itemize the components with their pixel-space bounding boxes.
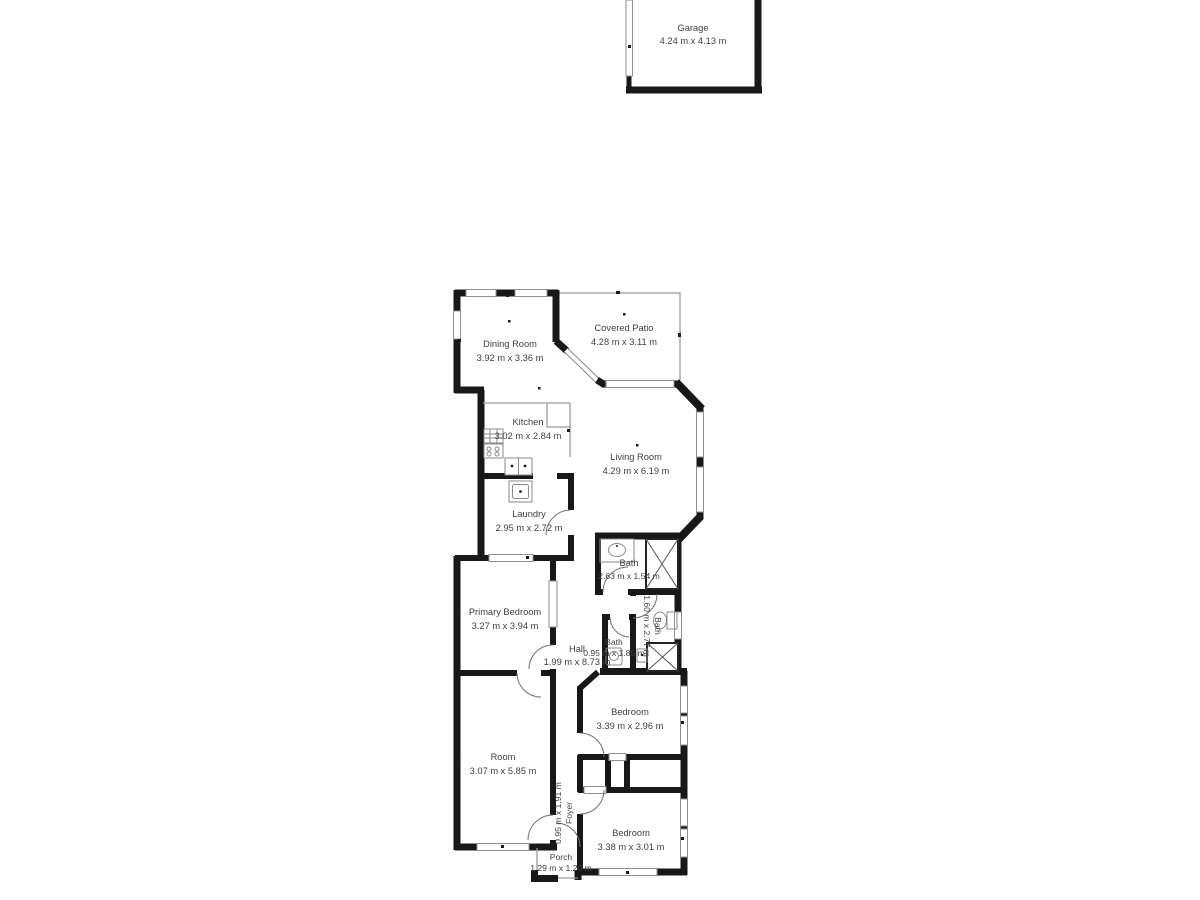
floorplan-page: Garage 4.24 m x 4.13 m Dining Room 3.92 … bbox=[0, 0, 1200, 900]
room-dims-living: 4.29 m x 6.19 m bbox=[603, 466, 670, 476]
room-label-bedroom1: Bedroom bbox=[611, 707, 649, 717]
stove-icon bbox=[484, 444, 503, 458]
room-label-living: Living Room bbox=[610, 452, 662, 462]
floorplan-svg: Garage 4.24 m x 4.13 m Dining Room 3.92 … bbox=[0, 0, 1200, 900]
room-label-porch: Porch bbox=[550, 852, 573, 862]
room-label-bath3: Bath bbox=[605, 637, 623, 647]
room-label-laundry: Laundry bbox=[512, 509, 546, 519]
room-dims-bath3: 0.95 m x 1.85 m bbox=[583, 648, 645, 658]
room-label-bath2: Bath bbox=[653, 617, 663, 635]
room-dims-bath1: 2.63 m x 1.54 m bbox=[598, 571, 660, 581]
laundry-fixtures bbox=[509, 481, 532, 502]
hall-closet bbox=[549, 581, 557, 627]
room-dims-laundry: 2.95 m x 2.72 m bbox=[496, 523, 563, 533]
laundry-sink-icon bbox=[509, 481, 532, 502]
shower-icon bbox=[646, 539, 678, 589]
room-dims-primary: 3.27 m x 3.94 m bbox=[472, 621, 539, 631]
room-dims-bedroom1: 3.39 m x 2.96 m bbox=[597, 721, 664, 731]
room-dims-bedroom2: 3.38 m x 3.01 m bbox=[598, 842, 665, 852]
closet-doors-2 bbox=[584, 787, 606, 794]
room-label-room: Room bbox=[491, 752, 516, 762]
room-label-kitchen: Kitchen bbox=[512, 417, 543, 427]
room-dims-patio: 4.28 m x 3.11 m bbox=[591, 337, 657, 347]
room-dims-room: 3.07 m x 5.85 m bbox=[470, 766, 537, 776]
room-dims-garage: 4.24 m x 4.13 m bbox=[660, 36, 727, 46]
room-label-patio: Covered Patio bbox=[595, 323, 654, 333]
garage-door bbox=[626, 0, 633, 76]
closet-doors bbox=[609, 754, 626, 761]
room-label-foyer: Foyer bbox=[564, 802, 574, 824]
room-label-bedroom2: Bedroom bbox=[612, 828, 650, 838]
room-dims-porch: 1.29 m x 1.20 m bbox=[530, 863, 592, 873]
room-label-dining: Dining Room bbox=[483, 339, 537, 349]
kitchen-sink-icon bbox=[505, 458, 532, 475]
room-label-garage: Garage bbox=[677, 23, 708, 33]
room-dims-foyer: 0.95 m x 1.91 m bbox=[553, 782, 563, 844]
room-dims-hall: 1.99 m x 8.73 m bbox=[544, 657, 611, 667]
room-label-bath1: Bath bbox=[619, 558, 638, 568]
canvas-background bbox=[0, 0, 1200, 900]
room-label-primary: Primary Bedroom bbox=[469, 607, 542, 617]
room-dims-dining: 3.92 m x 3.36 m bbox=[477, 353, 544, 363]
room-dims-kitchen: 3.02 m x 2.84 m bbox=[495, 431, 562, 441]
